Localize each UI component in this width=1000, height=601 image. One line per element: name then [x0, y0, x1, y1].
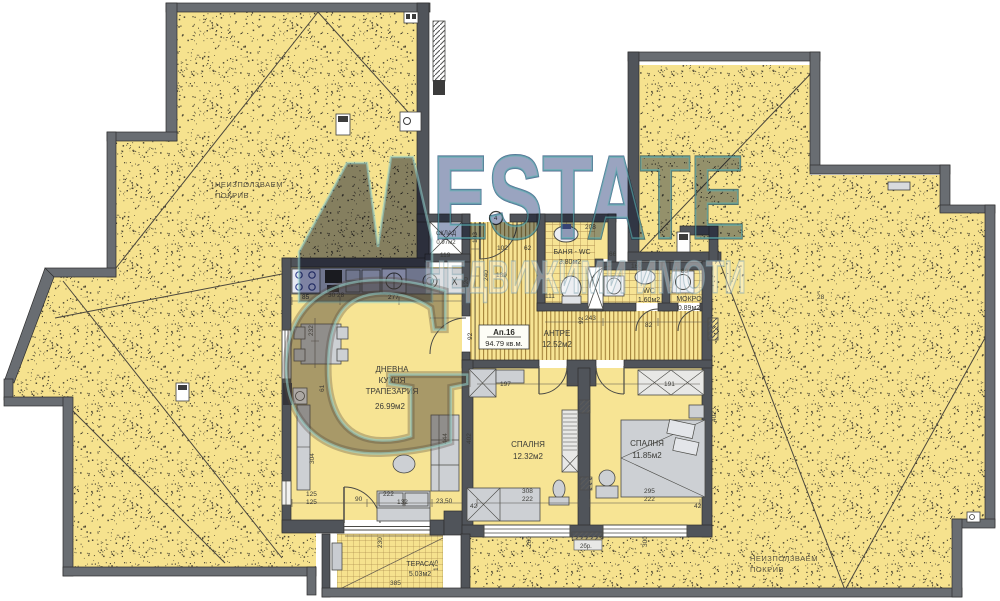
svg-text:28: 28 — [817, 294, 825, 301]
svg-text:42: 42 — [694, 503, 702, 510]
svg-text:Ап.16: Ап.16 — [493, 328, 515, 337]
svg-text:94.79 кв.м.: 94.79 кв.м. — [485, 339, 522, 348]
svg-text:G: G — [274, 221, 475, 507]
svg-text:12.32м2: 12.32м2 — [513, 452, 544, 461]
svg-text:11.85м2: 11.85м2 — [632, 451, 662, 460]
svg-text:260: 260 — [526, 536, 533, 547]
svg-text:НЕИЗПОЛЗВАЕМ: НЕИЗПОЛЗВАЕМ — [750, 554, 818, 563]
svg-text:НЕИЗПОЛЗВАЕМ: НЕИЗПОЛЗВАЕМ — [215, 180, 283, 189]
svg-text:82: 82 — [645, 322, 653, 329]
svg-text:300: 300 — [642, 536, 649, 547]
svg-text:ПОКРИВ: ПОКРИВ — [750, 565, 784, 574]
svg-text:АНТРЕ: АНТРЕ — [544, 329, 571, 338]
svg-text:5.03м2: 5.03м2 — [409, 571, 431, 578]
svg-text:ПОКРИВ: ПОКРИВ — [215, 191, 249, 200]
svg-text:385: 385 — [390, 580, 401, 587]
svg-text:222: 222 — [522, 496, 533, 503]
svg-text:191: 191 — [664, 381, 675, 388]
svg-text:243: 243 — [585, 315, 596, 322]
svg-text:ESTATE: ESTATE — [433, 132, 745, 264]
svg-text:295: 295 — [644, 488, 655, 495]
svg-text:ТЕРАСА: ТЕРАСА — [406, 561, 434, 568]
svg-text:308: 308 — [522, 488, 533, 495]
svg-text:СПАЛНЯ: СПАЛНЯ — [630, 439, 664, 448]
svg-text:12.52м2: 12.52м2 — [542, 340, 573, 349]
svg-text:175: 175 — [433, 560, 440, 571]
svg-text:402: 402 — [711, 411, 718, 422]
svg-text:230: 230 — [377, 537, 384, 548]
svg-text:СПАЛНЯ: СПАЛНЯ — [511, 440, 545, 449]
svg-text:92: 92 — [578, 316, 585, 324]
svg-text:197: 197 — [500, 381, 511, 388]
svg-text:2бр.: 2бр. — [580, 544, 592, 550]
svg-text:0.89м2: 0.89м2 — [678, 305, 700, 312]
svg-text:222: 222 — [644, 496, 655, 503]
